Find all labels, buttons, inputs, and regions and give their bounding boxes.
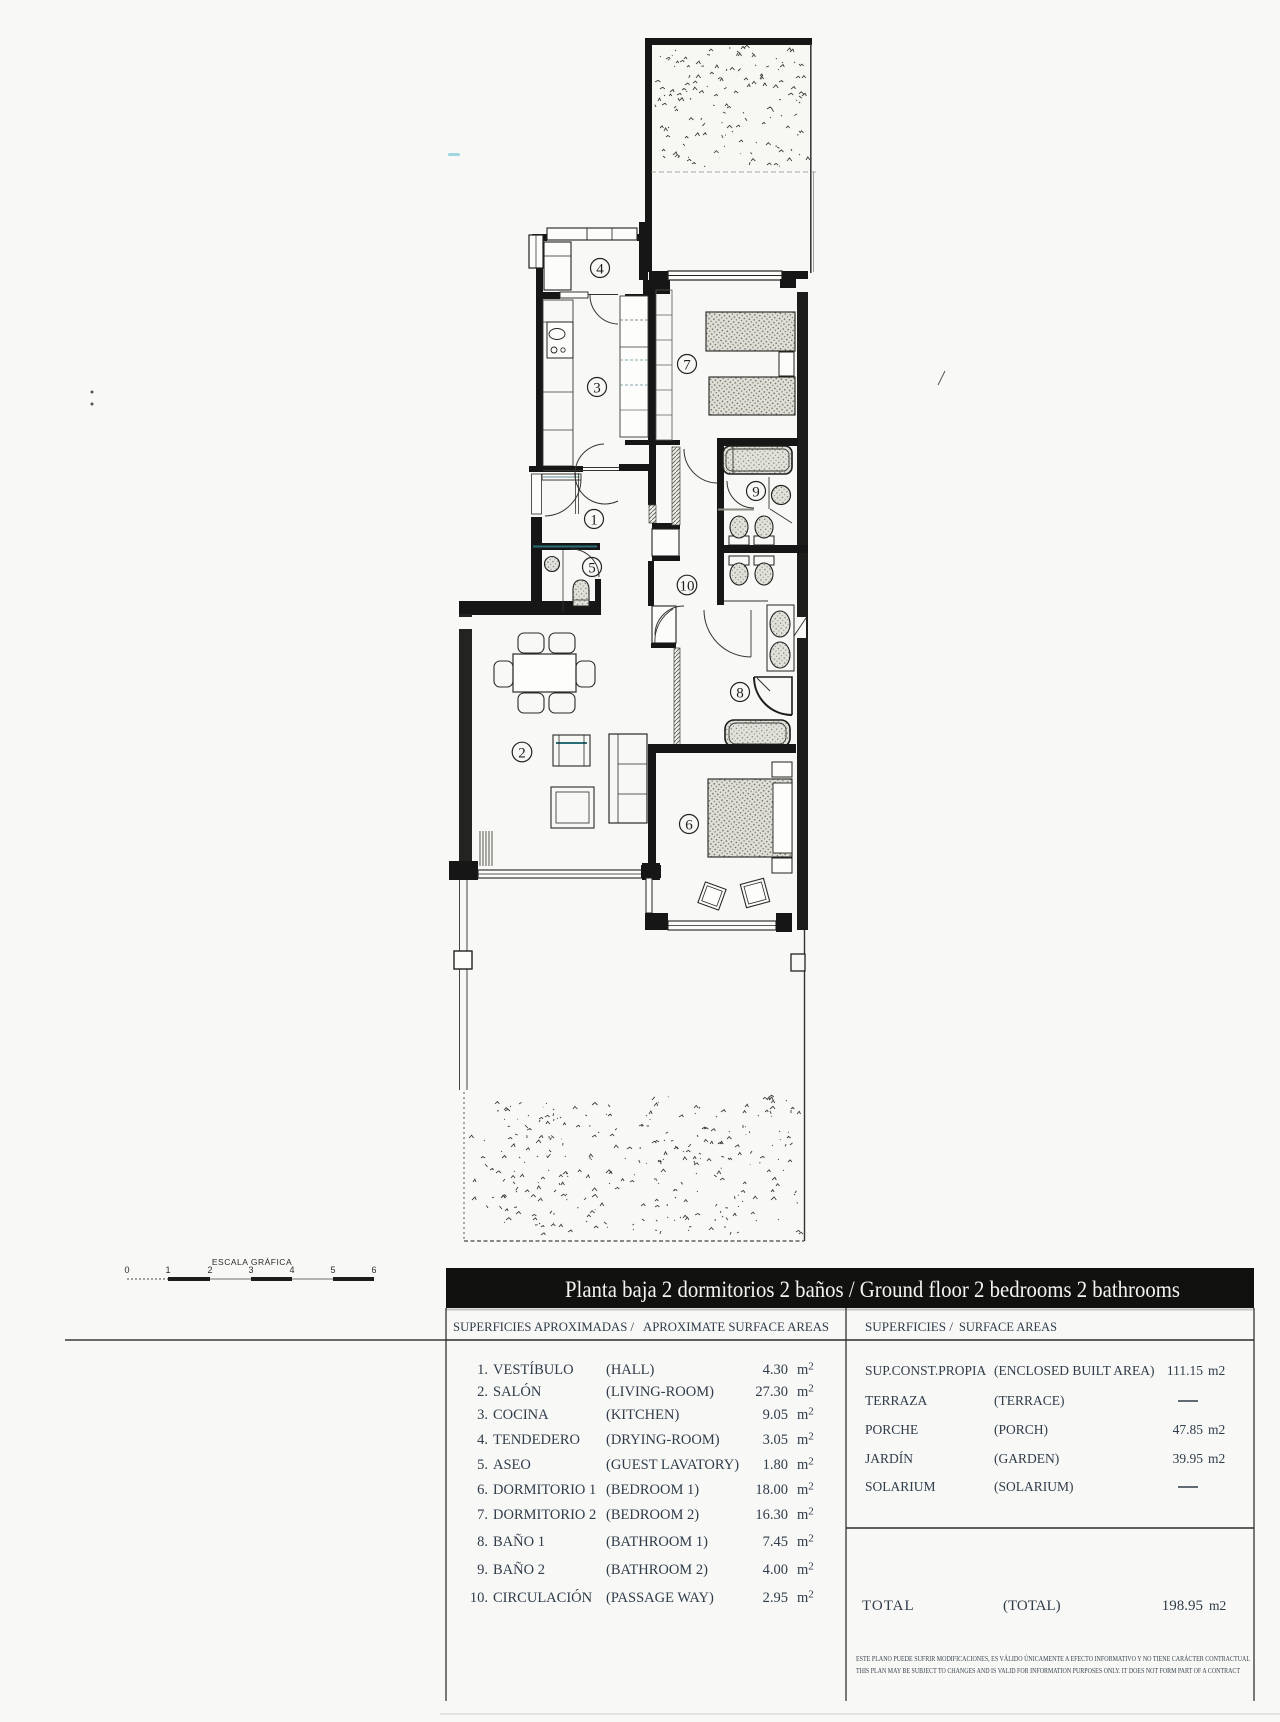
svg-text:(BEDROOM 1): (BEDROOM 1) <box>606 1482 699 1498</box>
svg-text:VESTÍBULO: VESTÍBULO <box>493 1361 574 1378</box>
svg-text:10: 10 <box>680 579 695 595</box>
svg-text:(SOLARIUM): (SOLARIUM) <box>994 1479 1074 1494</box>
svg-text:6.: 6. <box>477 1482 488 1498</box>
svg-text:1: 1 <box>165 1265 170 1275</box>
svg-text:4.00: 4.00 <box>763 1562 788 1578</box>
svg-text:4.: 4. <box>477 1432 488 1448</box>
svg-text:5: 5 <box>588 561 596 577</box>
svg-text:m2: m2 <box>1208 1422 1225 1437</box>
svg-text:1.: 1. <box>477 1362 488 1378</box>
svg-text:(PASSAGE WAY): (PASSAGE WAY) <box>606 1590 714 1606</box>
svg-text:2.: 2. <box>477 1384 488 1400</box>
svg-text:111.15: 111.15 <box>1167 1363 1203 1378</box>
svg-text:2: 2 <box>207 1265 212 1275</box>
svg-text:6: 6 <box>371 1265 376 1275</box>
svg-text:(BATHROOM 1): (BATHROOM 1) <box>606 1534 708 1550</box>
svg-text:PORCHE: PORCHE <box>865 1422 918 1437</box>
svg-text:m2: m2 <box>1209 1598 1226 1613</box>
svg-text:4: 4 <box>289 1265 294 1275</box>
svg-text:SALÓN: SALÓN <box>493 1383 542 1400</box>
svg-text:10.: 10. <box>470 1590 488 1606</box>
svg-text:JARDÍN: JARDÍN <box>865 1451 913 1466</box>
svg-text:8: 8 <box>736 686 744 702</box>
svg-text:9.: 9. <box>477 1562 488 1578</box>
svg-text:4.30: 4.30 <box>763 1362 788 1378</box>
svg-text:CIRCULACIÓN: CIRCULACIÓN <box>493 1589 593 1606</box>
svg-text:(BEDROOM 2): (BEDROOM 2) <box>606 1507 699 1523</box>
svg-text:(KITCHEN): (KITCHEN) <box>606 1407 679 1423</box>
svg-text:0: 0 <box>124 1265 129 1275</box>
svg-text:DORMITORIO 2: DORMITORIO 2 <box>493 1507 596 1523</box>
svg-text:5.: 5. <box>477 1457 488 1473</box>
svg-text:4: 4 <box>596 262 604 278</box>
svg-text:7.: 7. <box>477 1507 488 1523</box>
svg-text:39.95: 39.95 <box>1173 1451 1204 1466</box>
svg-text:1: 1 <box>590 513 598 529</box>
svg-text:TENDEDERO: TENDEDERO <box>493 1432 580 1448</box>
svg-text:7.45: 7.45 <box>763 1534 788 1550</box>
svg-text:DORMITORIO 1: DORMITORIO 1 <box>493 1482 596 1498</box>
svg-text:2.95: 2.95 <box>763 1590 788 1606</box>
svg-text:(GARDEN): (GARDEN) <box>994 1451 1059 1466</box>
svg-text:BAÑO 2: BAÑO 2 <box>493 1562 545 1578</box>
svg-text:(DRYING-ROOM): (DRYING-ROOM) <box>606 1432 720 1448</box>
svg-text:3: 3 <box>593 381 601 397</box>
svg-text:ESTE PLANO PUEDE SUFRIR MODIFI: ESTE PLANO PUEDE SUFRIR MODIFICACIONES, … <box>856 1655 1250 1663</box>
svg-text:SUPERFICIES APROXIMADAS /: SUPERFICIES APROXIMADAS / <box>453 1319 634 1334</box>
svg-text:198.95: 198.95 <box>1162 1598 1203 1614</box>
svg-text:9: 9 <box>752 485 760 501</box>
svg-text:(HALL): (HALL) <box>606 1362 654 1378</box>
svg-text:(LIVING-ROOM): (LIVING-ROOM) <box>606 1384 714 1400</box>
svg-text:(GUEST LAVATORY): (GUEST LAVATORY) <box>606 1457 739 1473</box>
svg-text:(BATHROOM 2): (BATHROOM 2) <box>606 1562 708 1578</box>
svg-text:3: 3 <box>248 1265 253 1275</box>
svg-text:18.00: 18.00 <box>755 1482 788 1498</box>
svg-text:16.30: 16.30 <box>755 1507 788 1523</box>
svg-text:BAÑO 1: BAÑO 1 <box>493 1534 545 1550</box>
svg-text:m2: m2 <box>1208 1363 1225 1378</box>
svg-text:(PORCH): (PORCH) <box>994 1422 1048 1437</box>
svg-text:SURFACE AREAS: SURFACE AREAS <box>959 1319 1057 1334</box>
svg-text:THIS PLAN MAY BE SUBJECT TO CH: THIS PLAN MAY BE SUBJECT TO CHANGES AND … <box>856 1667 1241 1675</box>
svg-text:(TERRACE): (TERRACE) <box>994 1393 1065 1408</box>
svg-text:SOLARIUM: SOLARIUM <box>865 1479 936 1494</box>
svg-text:TOTAL: TOTAL <box>862 1598 915 1614</box>
svg-text:SUPERFICIES /: SUPERFICIES / <box>865 1319 953 1334</box>
svg-text:ASEO: ASEO <box>493 1457 531 1473</box>
svg-text:1.80: 1.80 <box>763 1457 788 1473</box>
svg-text:2: 2 <box>518 746 526 762</box>
svg-text:47.85: 47.85 <box>1173 1422 1204 1437</box>
svg-text:8.: 8. <box>477 1534 488 1550</box>
svg-text:7: 7 <box>683 358 691 374</box>
svg-text:APROXIMATE SURFACE AREAS: APROXIMATE SURFACE AREAS <box>643 1319 829 1334</box>
svg-text:(ENCLOSED BUILT AREA): (ENCLOSED BUILT AREA) <box>994 1363 1155 1378</box>
svg-text:6: 6 <box>685 818 693 834</box>
svg-text:3.: 3. <box>477 1407 488 1423</box>
svg-text:Planta baja 2 dormitorios 2 ba: Planta baja 2 dormitorios 2 baños / Grou… <box>565 1277 1180 1302</box>
svg-text:COCINA: COCINA <box>493 1407 549 1423</box>
svg-text:5: 5 <box>330 1265 335 1275</box>
svg-text:SUP.CONST.PROPIA: SUP.CONST.PROPIA <box>865 1363 987 1378</box>
svg-text:27.30: 27.30 <box>755 1384 788 1400</box>
svg-text:m2: m2 <box>1208 1451 1225 1466</box>
svg-text:(TOTAL): (TOTAL) <box>1003 1598 1061 1614</box>
svg-text:TERRAZA: TERRAZA <box>865 1393 927 1408</box>
svg-text:9.05: 9.05 <box>763 1407 788 1423</box>
svg-text:3.05: 3.05 <box>763 1432 788 1448</box>
